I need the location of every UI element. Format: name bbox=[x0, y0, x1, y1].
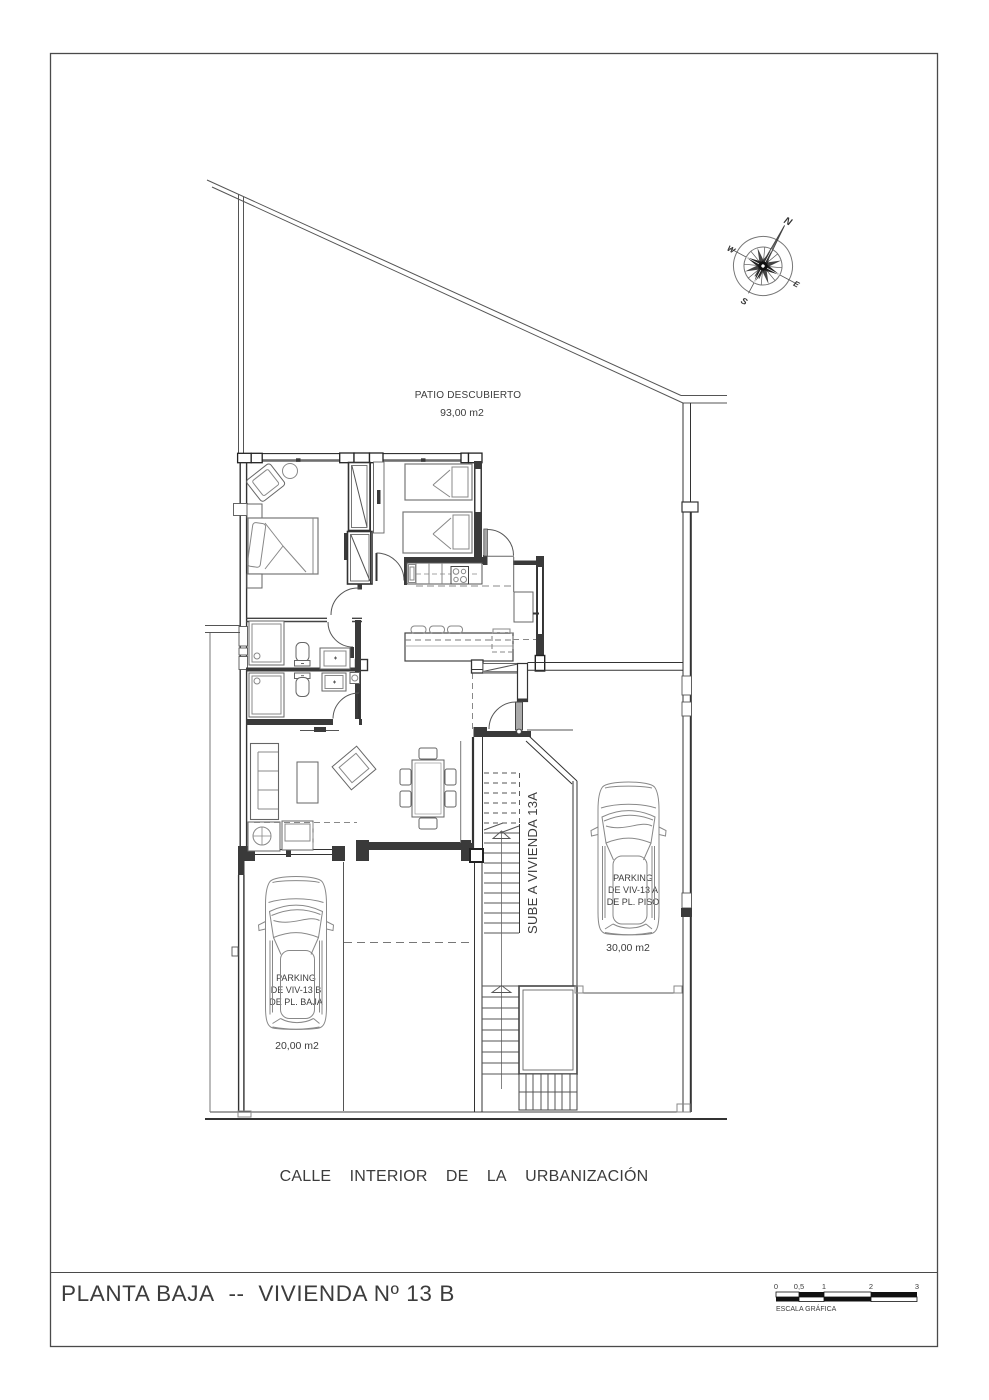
svg-text:PLANTA BAJA -- VIVIENDA Nº 1: PLANTA BAJA -- VIVIENDA Nº 13 B bbox=[61, 1281, 455, 1306]
svg-text:SUBE A VIVIENDA 13A: SUBE A VIVIENDA 13A bbox=[525, 792, 540, 934]
svg-text:PATIO DESCUBIERTO: PATIO DESCUBIERTO bbox=[415, 390, 522, 401]
svg-text:DE VIV-13 A: DE VIV-13 A bbox=[608, 885, 658, 895]
svg-text:2: 2 bbox=[869, 1282, 873, 1291]
svg-text:PARKING: PARKING bbox=[276, 973, 316, 983]
svg-text:DE VIV-13 B: DE VIV-13 B bbox=[271, 985, 322, 995]
svg-text:DE PL. PISO: DE PL. PISO bbox=[607, 897, 660, 907]
svg-text:0: 0 bbox=[774, 1282, 778, 1291]
svg-text:1: 1 bbox=[822, 1282, 826, 1291]
svg-text:30,00 m2: 30,00 m2 bbox=[606, 942, 650, 954]
svg-text:ESCALA GRÁFICA: ESCALA GRÁFICA bbox=[776, 1304, 837, 1313]
svg-text:0,5: 0,5 bbox=[794, 1282, 804, 1291]
svg-text:93,00 m2: 93,00 m2 bbox=[440, 407, 484, 419]
svg-text:3: 3 bbox=[915, 1282, 919, 1291]
svg-text:20,00 m2: 20,00 m2 bbox=[275, 1040, 319, 1052]
svg-text:CALLE INTERIOR DE LA URBAN: CALLE INTERIOR DE LA URBANIZACIÓN bbox=[280, 1166, 649, 1185]
